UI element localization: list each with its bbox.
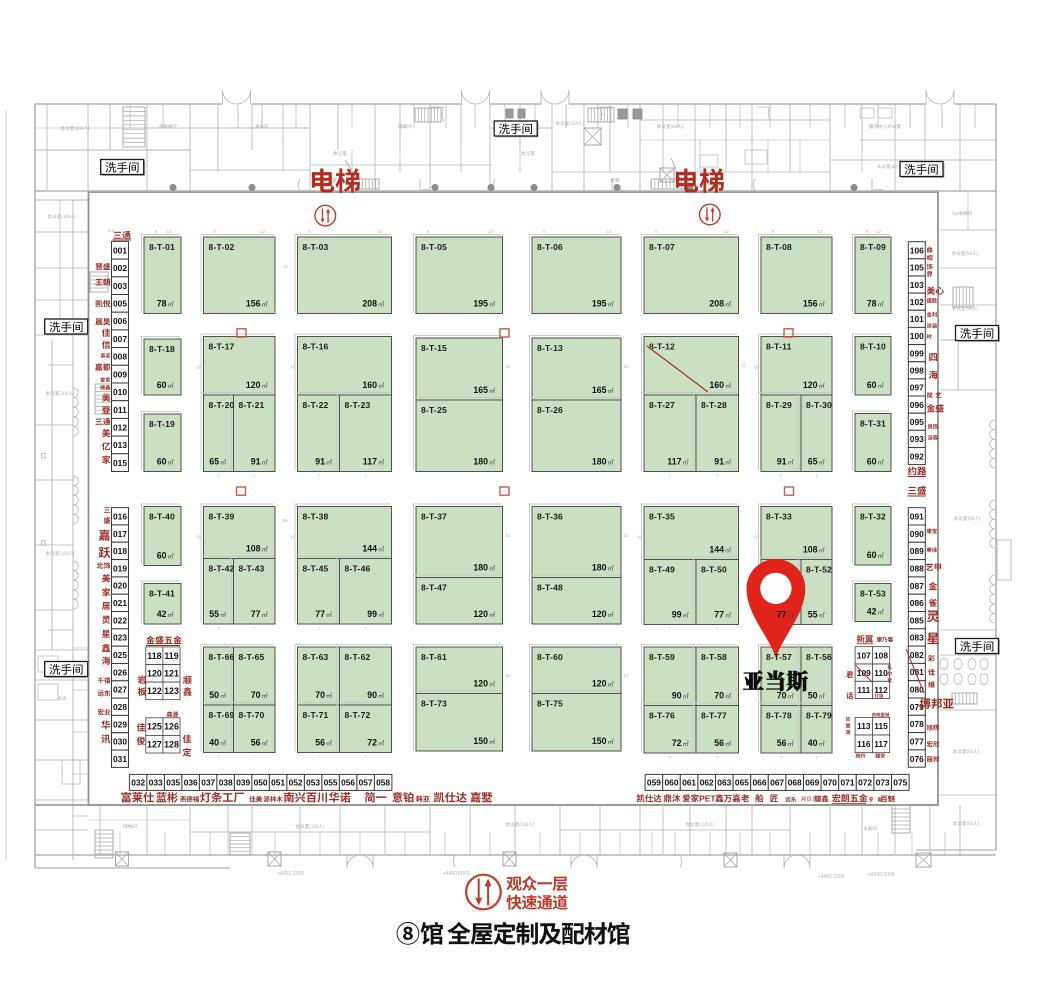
svg-text:8-T-10: 8-T-10 <box>860 341 886 351</box>
svg-text:156: 156 <box>246 299 261 309</box>
svg-text:117: 117 <box>667 457 681 467</box>
svg-text:119: 119 <box>164 651 178 661</box>
svg-text:8-T-20: 8-T-20 <box>209 400 235 410</box>
svg-text:180: 180 <box>592 563 607 573</box>
svg-text:+4400.0000: +4400.0000 <box>818 874 845 880</box>
svg-text:8-T-23: 8-T-23 <box>345 400 371 410</box>
svg-text:70: 70 <box>251 690 261 700</box>
svg-text:12: 12 <box>724 229 729 234</box>
svg-text:082: 082 <box>910 650 924 660</box>
svg-text:42: 42 <box>157 609 167 619</box>
svg-text:118: 118 <box>147 651 161 661</box>
svg-text:12: 12 <box>488 229 493 234</box>
svg-text:160: 160 <box>362 380 377 390</box>
svg-text:101: 101 <box>910 314 924 324</box>
svg-text:144: 144 <box>362 544 377 554</box>
svg-text:8-T-29: 8-T-29 <box>766 400 792 410</box>
svg-text:120: 120 <box>473 679 488 689</box>
svg-text:080: 080 <box>910 685 924 695</box>
svg-text:062: 062 <box>700 778 714 788</box>
svg-text:117: 117 <box>363 457 377 467</box>
svg-text:180: 180 <box>473 457 488 467</box>
svg-text:001: 001 <box>113 245 127 255</box>
svg-text:60: 60 <box>867 380 877 390</box>
svg-text:12: 12 <box>505 533 510 538</box>
svg-text:109: 109 <box>857 668 871 678</box>
svg-text:55: 55 <box>209 609 219 619</box>
svg-text:78: 78 <box>157 299 167 309</box>
svg-text:116: 116 <box>857 739 871 749</box>
svg-text:42: 42 <box>867 607 877 617</box>
svg-text:077: 077 <box>910 737 924 747</box>
svg-text:8-T-45: 8-T-45 <box>303 563 329 573</box>
svg-text:068: 068 <box>788 778 802 788</box>
svg-text:12: 12 <box>505 364 510 369</box>
svg-text:144: 144 <box>709 545 724 555</box>
svg-text:8-T-61: 8-T-61 <box>421 652 447 662</box>
svg-text:099: 099 <box>910 348 924 358</box>
svg-text:8-T-69: 8-T-69 <box>209 710 235 720</box>
svg-text:003: 003 <box>113 281 127 291</box>
svg-text:083: 083 <box>910 633 924 643</box>
svg-text:010: 010 <box>113 387 127 397</box>
svg-text:8-T-01: 8-T-01 <box>149 242 175 252</box>
svg-text:057: 057 <box>359 778 373 788</box>
svg-text:99: 99 <box>672 610 682 620</box>
svg-text:050: 050 <box>254 778 268 788</box>
svg-text:028: 028 <box>113 702 127 712</box>
svg-text:073: 073 <box>876 778 890 788</box>
svg-text:8-T-49: 8-T-49 <box>649 564 675 574</box>
svg-text:037: 037 <box>201 778 215 788</box>
svg-text:033: 033 <box>149 778 163 788</box>
svg-text:65: 65 <box>209 457 219 467</box>
svg-text:063: 063 <box>717 778 731 788</box>
svg-text:011: 011 <box>113 405 127 415</box>
svg-text:065: 065 <box>735 778 749 788</box>
svg-text:156: 156 <box>803 299 818 309</box>
svg-text:77: 77 <box>777 610 787 620</box>
svg-text:120: 120 <box>592 679 607 689</box>
svg-text:8-T-53: 8-T-53 <box>860 588 886 598</box>
svg-text:56: 56 <box>714 738 724 748</box>
svg-text:089: 089 <box>910 546 924 556</box>
svg-text:60: 60 <box>867 550 877 560</box>
svg-text:025: 025 <box>113 650 127 660</box>
svg-text:067: 067 <box>770 778 784 788</box>
svg-text:122: 122 <box>147 686 162 696</box>
svg-text:150: 150 <box>592 736 607 746</box>
svg-text:002: 002 <box>113 263 127 273</box>
svg-text:111: 111 <box>857 685 870 695</box>
svg-text:40: 40 <box>209 738 219 748</box>
svg-text:075: 075 <box>893 778 907 788</box>
svg-text:180: 180 <box>473 563 488 573</box>
svg-text:16: 16 <box>754 365 759 370</box>
svg-text:058: 058 <box>376 778 390 788</box>
svg-text:160: 160 <box>709 380 724 390</box>
svg-text:008: 008 <box>113 352 127 362</box>
svg-text:8-T-58: 8-T-58 <box>701 652 727 662</box>
svg-text:16: 16 <box>196 365 201 370</box>
svg-text:65: 65 <box>808 457 818 467</box>
svg-text:12: 12 <box>505 673 510 678</box>
svg-text:112: 112 <box>874 685 888 695</box>
svg-text:16: 16 <box>754 535 759 540</box>
svg-text:087: 087 <box>910 581 924 591</box>
svg-text:110: 110 <box>874 668 888 678</box>
svg-text:99: 99 <box>367 609 377 619</box>
svg-text:8-T-73: 8-T-73 <box>421 698 447 708</box>
svg-text:12: 12 <box>818 229 823 234</box>
svg-text:78: 78 <box>867 299 877 309</box>
svg-text:72: 72 <box>672 738 682 748</box>
svg-text:091: 091 <box>910 512 924 522</box>
svg-text:8-T-47: 8-T-47 <box>421 582 447 592</box>
svg-text:8-T-26: 8-T-26 <box>537 405 563 415</box>
svg-text:8-T-28: 8-T-28 <box>701 400 727 410</box>
svg-text:91: 91 <box>315 457 325 467</box>
svg-text:053: 053 <box>306 778 320 788</box>
svg-text:115: 115 <box>874 721 888 731</box>
svg-text:076: 076 <box>910 754 924 764</box>
svg-text:020: 020 <box>113 581 127 591</box>
svg-text:15: 15 <box>283 264 288 269</box>
svg-text:12: 12 <box>261 229 266 234</box>
svg-text:91: 91 <box>777 457 787 467</box>
svg-text:059: 059 <box>647 778 661 788</box>
svg-text:035: 035 <box>166 778 180 788</box>
svg-text:027: 027 <box>113 685 127 695</box>
svg-text:052: 052 <box>289 778 303 788</box>
svg-text:120: 120 <box>147 668 162 678</box>
svg-text:8-T-02: 8-T-02 <box>209 242 235 252</box>
svg-text:77: 77 <box>315 609 325 619</box>
svg-text:50: 50 <box>209 690 219 700</box>
svg-text:113: 113 <box>857 721 871 731</box>
svg-text:8-T-21: 8-T-21 <box>239 400 265 410</box>
svg-text:8-T-27: 8-T-27 <box>649 400 675 410</box>
svg-text:8-T-05: 8-T-05 <box>421 242 447 252</box>
svg-text:128: 128 <box>164 739 179 749</box>
svg-text:8-T-76: 8-T-76 <box>649 710 675 720</box>
svg-text:12: 12 <box>167 229 172 234</box>
svg-text:180: 180 <box>592 457 607 467</box>
svg-text:8-T-42: 8-T-42 <box>209 563 235 573</box>
svg-text:018: 018 <box>113 546 127 556</box>
svg-text:8-T-41: 8-T-41 <box>149 588 175 598</box>
svg-text:8-T-06: 8-T-06 <box>537 242 563 252</box>
svg-text:098: 098 <box>910 366 924 376</box>
svg-text:8-T-32: 8-T-32 <box>860 511 886 521</box>
svg-text:016: 016 <box>113 512 127 522</box>
svg-text:125: 125 <box>147 722 162 732</box>
svg-text:106: 106 <box>910 246 924 256</box>
svg-text:8-T-52: 8-T-52 <box>806 564 832 574</box>
svg-text:12: 12 <box>877 229 882 234</box>
svg-text:90: 90 <box>672 691 682 701</box>
svg-text:12: 12 <box>607 229 612 234</box>
svg-text:120: 120 <box>246 380 261 390</box>
svg-text:72: 72 <box>367 738 377 748</box>
svg-text:55: 55 <box>283 518 288 523</box>
svg-text:8-T-70: 8-T-70 <box>239 710 265 720</box>
svg-text:195: 195 <box>592 299 607 309</box>
svg-text:+4551.3333: +4551.3333 <box>277 871 304 877</box>
svg-text:120: 120 <box>592 609 607 619</box>
svg-text:012: 012 <box>113 422 127 432</box>
svg-text:029: 029 <box>113 719 127 729</box>
svg-text:165: 165 <box>473 385 488 395</box>
svg-text:+4400.0000: +4400.0000 <box>443 871 470 877</box>
svg-text:070: 070 <box>823 778 837 788</box>
svg-text:026: 026 <box>113 667 127 677</box>
svg-text:071: 071 <box>841 778 855 788</box>
svg-text:120: 120 <box>803 380 818 390</box>
svg-text:60: 60 <box>157 551 167 561</box>
svg-text:102: 102 <box>910 297 924 307</box>
svg-text:56: 56 <box>777 738 787 748</box>
svg-text:16: 16 <box>196 535 201 540</box>
svg-text:096: 096 <box>910 400 924 410</box>
svg-text:56: 56 <box>251 738 261 748</box>
svg-text:8-T-31: 8-T-31 <box>860 418 886 428</box>
svg-text:60: 60 <box>157 380 167 390</box>
svg-text:+4650.0000: +4650.0000 <box>868 872 895 878</box>
svg-text:70: 70 <box>777 691 787 701</box>
svg-text:8-T-16: 8-T-16 <box>303 341 329 351</box>
svg-text:12: 12 <box>741 363 746 368</box>
svg-text:8-T-48: 8-T-48 <box>537 582 563 592</box>
svg-text:60: 60 <box>867 457 877 467</box>
svg-text:8-T-57: 8-T-57 <box>766 652 792 662</box>
svg-text:8-T-43: 8-T-43 <box>239 563 265 573</box>
svg-text:097: 097 <box>910 383 924 393</box>
svg-text:16: 16 <box>637 535 642 540</box>
svg-text:108: 108 <box>874 651 888 661</box>
svg-text:123: 123 <box>164 686 179 696</box>
svg-text:8-T-15: 8-T-15 <box>421 343 447 353</box>
svg-text:8-T-65: 8-T-65 <box>239 652 265 662</box>
svg-text:121: 121 <box>164 668 179 678</box>
svg-text:55: 55 <box>808 610 818 620</box>
svg-text:40: 40 <box>808 738 818 748</box>
svg-text:8-T-63: 8-T-63 <box>303 652 329 662</box>
svg-text:093: 093 <box>910 434 924 444</box>
svg-text:8-T-19: 8-T-19 <box>149 419 175 429</box>
svg-text:8-T-11: 8-T-11 <box>766 341 792 351</box>
svg-text:088: 088 <box>910 564 924 574</box>
svg-text:072: 072 <box>858 778 872 788</box>
svg-text:8-T-71: 8-T-71 <box>303 710 329 720</box>
svg-text:91: 91 <box>714 457 724 467</box>
svg-text:021: 021 <box>113 598 127 608</box>
svg-text:023: 023 <box>113 633 127 643</box>
svg-text:006: 006 <box>113 316 127 326</box>
svg-text:150: 150 <box>473 736 488 746</box>
svg-text:8-T-18: 8-T-18 <box>149 344 175 354</box>
svg-text:91: 91 <box>251 457 261 467</box>
svg-text:013: 013 <box>113 440 127 450</box>
svg-text:12: 12 <box>624 673 629 678</box>
svg-text:8-T-36: 8-T-36 <box>537 511 563 521</box>
svg-text:066: 066 <box>753 778 767 788</box>
svg-text:8-T-30: 8-T-30 <box>806 400 832 410</box>
svg-text:8-T-78: 8-T-78 <box>766 710 792 720</box>
svg-text:030: 030 <box>113 737 127 747</box>
svg-text:12: 12 <box>624 364 629 369</box>
svg-text:56: 56 <box>315 738 325 748</box>
svg-text:086: 086 <box>910 598 924 608</box>
svg-text:022: 022 <box>113 615 127 625</box>
svg-text:8-T-25: 8-T-25 <box>421 405 447 415</box>
svg-text:032: 032 <box>131 778 145 788</box>
svg-text:8-T-60: 8-T-60 <box>537 652 563 662</box>
svg-text:77: 77 <box>714 610 724 620</box>
svg-text:127: 127 <box>147 739 162 749</box>
svg-text:8-T-33: 8-T-33 <box>766 511 792 521</box>
svg-text:12: 12 <box>377 229 382 234</box>
svg-text:8-T-66: 8-T-66 <box>209 652 235 662</box>
svg-text:078: 078 <box>910 719 924 729</box>
svg-text:090: 090 <box>910 529 924 539</box>
svg-text:8-T-13: 8-T-13 <box>537 343 563 353</box>
svg-text:061: 061 <box>682 778 696 788</box>
svg-text:208: 208 <box>709 299 724 309</box>
svg-text:126: 126 <box>164 722 179 732</box>
svg-text:069: 069 <box>805 778 819 788</box>
svg-text:100: 100 <box>910 331 924 341</box>
svg-text:051: 051 <box>271 778 285 788</box>
svg-text:8-T-17: 8-T-17 <box>209 341 235 351</box>
svg-text:8-T-09: 8-T-09 <box>860 242 886 252</box>
svg-text:031: 031 <box>113 754 127 764</box>
svg-text:8-T-59: 8-T-59 <box>649 652 675 662</box>
svg-text:8-T-46: 8-T-46 <box>345 563 371 573</box>
svg-text:108: 108 <box>803 545 818 555</box>
svg-text:90: 90 <box>367 690 377 700</box>
svg-text:77: 77 <box>251 609 261 619</box>
svg-text:195: 195 <box>473 299 488 309</box>
svg-text:017: 017 <box>113 529 127 539</box>
svg-text:208: 208 <box>362 299 377 309</box>
svg-text:108: 108 <box>246 544 261 554</box>
svg-text:8-T-40: 8-T-40 <box>149 511 175 521</box>
svg-text:103: 103 <box>910 280 924 290</box>
svg-text:105: 105 <box>910 263 924 273</box>
svg-text:8-T-39: 8-T-39 <box>209 511 235 521</box>
svg-text:107: 107 <box>857 651 871 661</box>
svg-text:16: 16 <box>290 535 295 540</box>
svg-text:092: 092 <box>910 451 924 461</box>
svg-text:095: 095 <box>910 417 924 427</box>
svg-text:PET: PET <box>699 794 716 804</box>
svg-text:8-T-03: 8-T-03 <box>303 242 329 252</box>
svg-text:8-T-50: 8-T-50 <box>701 564 727 574</box>
svg-text:060: 060 <box>665 778 679 788</box>
svg-text:055: 055 <box>324 778 338 788</box>
svg-text:056: 056 <box>341 778 355 788</box>
svg-text:50: 50 <box>808 691 818 701</box>
svg-text:8-T-07: 8-T-07 <box>649 242 675 252</box>
svg-text:16: 16 <box>290 365 295 370</box>
svg-text:70: 70 <box>714 691 724 701</box>
svg-text:019: 019 <box>113 563 127 573</box>
svg-text:8-T-56: 8-T-56 <box>806 652 832 662</box>
svg-text:165: 165 <box>592 385 607 395</box>
svg-text:8-T-08: 8-T-08 <box>766 242 792 252</box>
svg-text:015: 015 <box>113 458 127 468</box>
svg-text:039: 039 <box>236 778 250 788</box>
svg-text:8-T-75: 8-T-75 <box>537 698 563 708</box>
svg-text:12: 12 <box>624 533 629 538</box>
svg-text:8-T-35: 8-T-35 <box>649 511 675 521</box>
svg-text:117: 117 <box>874 739 888 749</box>
svg-text:8-T-77: 8-T-77 <box>701 710 727 720</box>
svg-text:8-T-72: 8-T-72 <box>345 710 371 720</box>
svg-text:009: 009 <box>113 369 127 379</box>
svg-text:70: 70 <box>315 690 325 700</box>
svg-text:120: 120 <box>473 609 488 619</box>
svg-text:8-T-37: 8-T-37 <box>421 511 447 521</box>
svg-text:038: 038 <box>219 778 233 788</box>
svg-text:005: 005 <box>113 299 127 309</box>
svg-text:8-T-79: 8-T-79 <box>806 710 832 720</box>
svg-text:036: 036 <box>184 778 198 788</box>
svg-text:8-T-38: 8-T-38 <box>303 511 329 521</box>
svg-text:8-T-22: 8-T-22 <box>303 400 329 410</box>
svg-text:085: 085 <box>910 615 924 625</box>
svg-text:8-T-62: 8-T-62 <box>345 652 371 662</box>
svg-text:007: 007 <box>113 334 127 344</box>
svg-text:60: 60 <box>157 457 167 467</box>
svg-text:3.5: 3.5 <box>108 228 114 233</box>
